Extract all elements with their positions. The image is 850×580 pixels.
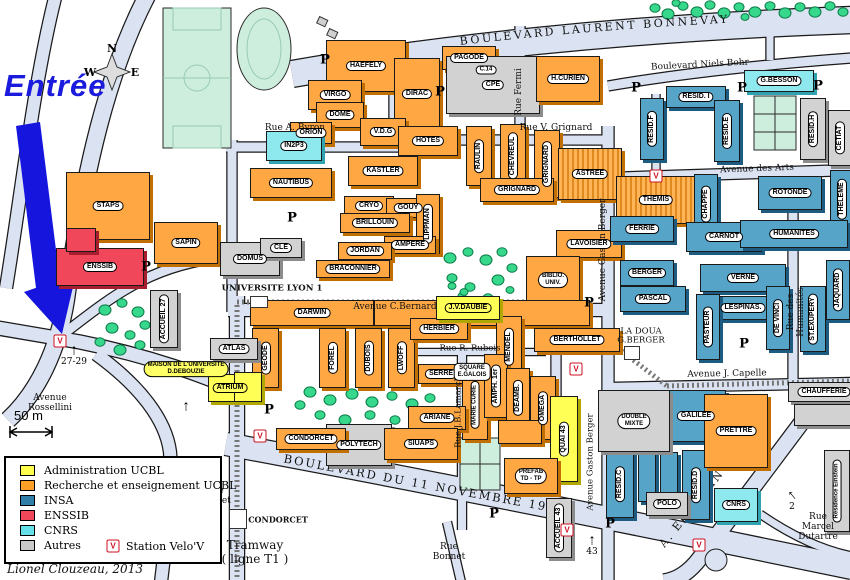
building-label-resid-h: RESID.H	[808, 111, 818, 147]
building-label-enssib: ENSSIB	[83, 262, 117, 272]
building-label-biblio: BIBLIO.UNIV.	[538, 272, 568, 288]
building-label-cnrs: CNRS	[722, 500, 750, 510]
building-label-orion: ORION	[296, 128, 327, 138]
building-label-pagode: PAGODE	[450, 53, 488, 63]
parking-marker: P	[287, 211, 297, 226]
building-label-theleme: THELEME	[837, 178, 847, 219]
entrance-number-arrow: ↑	[70, 342, 78, 359]
street-label-avenue-j-capelle: Avenue J. Capelle	[687, 369, 767, 380]
building-label-cpe: CPE	[482, 80, 504, 90]
street-label-avenue-gaston-berger: Avenue Gaston Berger	[599, 199, 609, 302]
building-label-domus: DOMUS	[233, 254, 267, 264]
building-label-ariane: ARIANE	[420, 413, 455, 423]
building-label-resid-c: RESID.C	[615, 466, 625, 502]
legend-item-label: Recherche et enseignement UCBL	[44, 479, 236, 492]
building-label-berger: BERGER	[628, 268, 666, 278]
velov-station-icon: V	[107, 540, 120, 553]
building-label-polo: POLO	[653, 499, 681, 509]
campus-map: N W E BOULEVARD LAURENT BONNEVAY BOULEVA…	[0, 0, 850, 580]
parking-marker: P	[320, 53, 330, 68]
building-label-lwoff: LWOFF	[396, 342, 406, 375]
building-label-square: SQUAREE.GALOIS	[454, 363, 491, 381]
building-label-dirac: DIRAC	[402, 89, 432, 99]
building-item	[66, 228, 96, 252]
building-label-chevreul: CHEVREUL	[508, 133, 518, 180]
building-label-atlas: ATLAS	[219, 344, 250, 354]
parking-marker: P	[141, 260, 151, 275]
building-label-brillouin: BRILLOUIN	[352, 218, 398, 228]
building-label-deamb: DEAMB.	[513, 380, 523, 416]
parking-marker: P	[489, 507, 499, 522]
tram-stop-marker-ladoua	[624, 346, 640, 360]
parking-marker: P	[813, 79, 823, 94]
street-label-rue-v-grignard: Rue V. Grignard	[520, 124, 593, 134]
building-label-dome: DOME	[326, 110, 355, 120]
building-label-cle: CLE	[270, 243, 292, 253]
street-label-avenue-gaston-berger: Avenue Gaston Berger	[586, 413, 595, 510]
building-label-verne: VERNE	[727, 273, 759, 283]
building-label-ferrie: FERRIE	[625, 224, 659, 234]
map-legend: Administration UCBLRecherche et enseigne…	[4, 456, 222, 564]
building-label-siuaps: SIUAPS	[404, 439, 438, 449]
tram-stop-marker-universite	[250, 296, 268, 308]
building-label-grignard: GRIGNARD	[542, 141, 552, 187]
soccer-field	[163, 8, 231, 148]
building-label-g-besson: G.BESSON	[757, 76, 802, 86]
parking-marker: P	[737, 81, 747, 96]
legend-swatch	[20, 510, 35, 521]
legend-item-label: INSA	[44, 494, 73, 507]
running-track	[237, 8, 291, 90]
building-label-jaquard: JAQUARD	[833, 269, 843, 312]
entrance-number-label: 27-29	[61, 357, 87, 367]
building-label-lippman: LIPPMAN	[423, 204, 433, 244]
parking-marker: P	[739, 337, 749, 352]
legend-swatch	[20, 495, 35, 506]
building-label-c-14: C.14	[476, 66, 497, 75]
velov-station-icon: V	[254, 430, 267, 443]
building-label-grignard: GRIGNARD	[494, 185, 540, 195]
building-label-astree: ASTREE	[572, 169, 608, 179]
building-label-resid-d: RESID.D	[691, 467, 701, 503]
building-label-carnot: CARNOT	[705, 232, 743, 242]
svg-text:E: E	[131, 66, 139, 79]
building-label-r-sidence-einstein: Résidence Einstein	[833, 459, 842, 522]
velov-station-icon: V	[570, 363, 583, 376]
building-label-cetiat: CETIAT	[835, 122, 845, 155]
velov-station-icon: V	[693, 539, 706, 552]
building-label-chaufferie: CHAUFFERIE	[797, 387, 850, 397]
building-label-de-vinci: DE VINCI	[773, 299, 783, 337]
street-label-rue-fermi: Rue Fermi	[515, 68, 525, 116]
building-label-pasteur: PASTEUR	[703, 307, 713, 348]
street-label-condorcet: CONDORCET	[248, 516, 308, 525]
legend-item-label: CNRS	[44, 524, 78, 537]
building-label-rotonde: ROTONDE	[769, 188, 812, 198]
street-label-rue-des-humanit-s: Rue des Humanités	[787, 286, 807, 339]
building-label-lavoisier: LAVOISIER	[566, 239, 611, 249]
building-label-v-d-g: V.D.G	[370, 127, 396, 137]
building-label-prefab: PREFABTD - TP	[515, 468, 547, 484]
building-label-marie-curie: MARIE CURIE	[471, 381, 480, 429]
map-credit: Lionel Clouzeau, 2013	[7, 562, 143, 576]
scale-bar	[10, 426, 52, 438]
building-label-amph-1er: AMPH. 1er	[491, 364, 501, 407]
building-label-themis: THEMIS	[639, 195, 673, 205]
velov-station-icon: V	[561, 524, 574, 537]
street-label-la-doua: LA DOUA G.BERGER	[617, 328, 664, 347]
building-label-h-curien: H.CURIEN	[547, 74, 589, 84]
building-label-resid-i: RESID. I	[678, 92, 713, 102]
building-label-quai-43: QUAI 43	[559, 421, 569, 456]
building-label-atrium: ATRIUM	[213, 383, 248, 393]
entrance-number-arrow: ↑	[182, 398, 190, 415]
building-label-ampere: AMPERE	[391, 240, 429, 250]
building-label-serre: SERRE	[425, 369, 457, 379]
legend-swatch	[20, 465, 35, 476]
building-label-nautibus: NAUTIBUS	[269, 178, 313, 188]
building-label-darwin: DARWIN	[294, 308, 331, 318]
street-label-rue-j-b-lamarck: Rue J.B.Lamarck	[454, 376, 463, 448]
building-label-raulin: RAULIN	[474, 139, 484, 173]
street-label-avenue-c-bernard: Avenue C.Bernard	[353, 303, 436, 313]
building-label-pascal: PASCAL	[635, 294, 671, 304]
building-label-humanites: HUMANITES	[769, 229, 819, 239]
building-label-virgo: VIRGO	[320, 90, 351, 100]
building-label-jordan: JORDAN	[346, 246, 384, 256]
building-label-braconnier: BRACONNIER	[325, 264, 380, 274]
building-label-haefely: HAEFELY	[346, 61, 386, 71]
building-label-berthollet: BERTHOLLET	[549, 335, 604, 345]
legend-swatch	[20, 540, 35, 551]
building-label-j-v-daubie: J.V.DAUBIE	[445, 303, 492, 313]
parking-marker: P	[631, 81, 641, 96]
building-label-lespinas: LESPINAS.	[721, 303, 766, 313]
legend-item-label: Administration UCBL	[44, 464, 164, 477]
entrance-label: Entrée	[4, 68, 106, 104]
street-label-universite-lyon-1: UNIVERSITE LYON 1	[222, 284, 323, 293]
legend-swatch	[20, 480, 35, 491]
velov-station-icon: V	[650, 170, 663, 183]
street-label-rue: Rue Bonnet	[433, 543, 466, 563]
legend-swatch	[20, 525, 35, 536]
roundabout	[705, 549, 727, 571]
entrance-number-label: 2	[789, 502, 795, 512]
tram-stop-marker-condorcet	[229, 509, 247, 529]
building-label-accueil-27: ACCUEIL 27	[159, 295, 169, 344]
legend-item-label: ENSSIB	[44, 509, 89, 522]
building-label-geode: GEODE	[260, 341, 270, 374]
svg-text:N: N	[107, 42, 117, 55]
legend-item-label: Autres	[44, 539, 81, 552]
building-item	[498, 420, 542, 444]
building-label-prettre: PRETTRE	[716, 426, 757, 436]
building-label-st-exupery: ST.EXUPERY	[808, 293, 818, 344]
building-label-staps: STAPS	[93, 201, 124, 211]
street-label-rue-r-rubois: Rue R. Rubois	[440, 344, 501, 353]
building-label-chappe: CHAPPE	[701, 185, 711, 222]
building-label-dubois: DUBOIS	[363, 340, 373, 375]
building-label-gouy: GOUY	[394, 203, 423, 213]
building-label-mendel: MENDEL	[504, 328, 514, 366]
parking-marker: P	[605, 517, 615, 532]
building-label-omega: OMEGA	[538, 391, 548, 425]
building-item	[794, 404, 850, 426]
building-label-herbier: HERBIER	[419, 324, 459, 334]
building-label-in2p3: IN2P3	[280, 141, 307, 151]
parking-marker: P	[264, 403, 274, 418]
legend-velov-label: Station Velo'V	[126, 540, 204, 553]
building-label-forel: FOREL	[327, 342, 337, 374]
building-label-double: DOUBLEMIXTE	[617, 413, 650, 429]
building-label-maison-de-l-universite: MAISON DE L'UNIVERSITED.DEBOUZIE	[144, 361, 229, 377]
entrance-number-label: 43	[586, 547, 597, 557]
entrance-number-arrow: ↑	[588, 532, 596, 549]
velov-station-icon: V	[54, 335, 67, 348]
parking-marker: P	[584, 296, 594, 311]
building-label-resid-e: RESID.E	[722, 113, 732, 149]
building-label-resid-f: RESID.F	[647, 111, 657, 147]
scale-label: 50 m	[14, 408, 43, 423]
building-label-polytech: POLYTECH	[336, 440, 381, 450]
building-label-condorcet: CONDORCET	[284, 434, 337, 444]
building-label-hotes: HOTES	[412, 136, 444, 146]
parking-marker: P	[435, 85, 445, 100]
building-label-cryo: CRYO	[355, 201, 383, 211]
building-label-galilee: GALILEE	[677, 411, 715, 421]
tramway-note: Tramway ( ligne T1 )	[210, 538, 300, 566]
building-label-kastler: KASTLER	[362, 166, 403, 176]
building-label-sapin: SAPIN	[171, 238, 200, 248]
